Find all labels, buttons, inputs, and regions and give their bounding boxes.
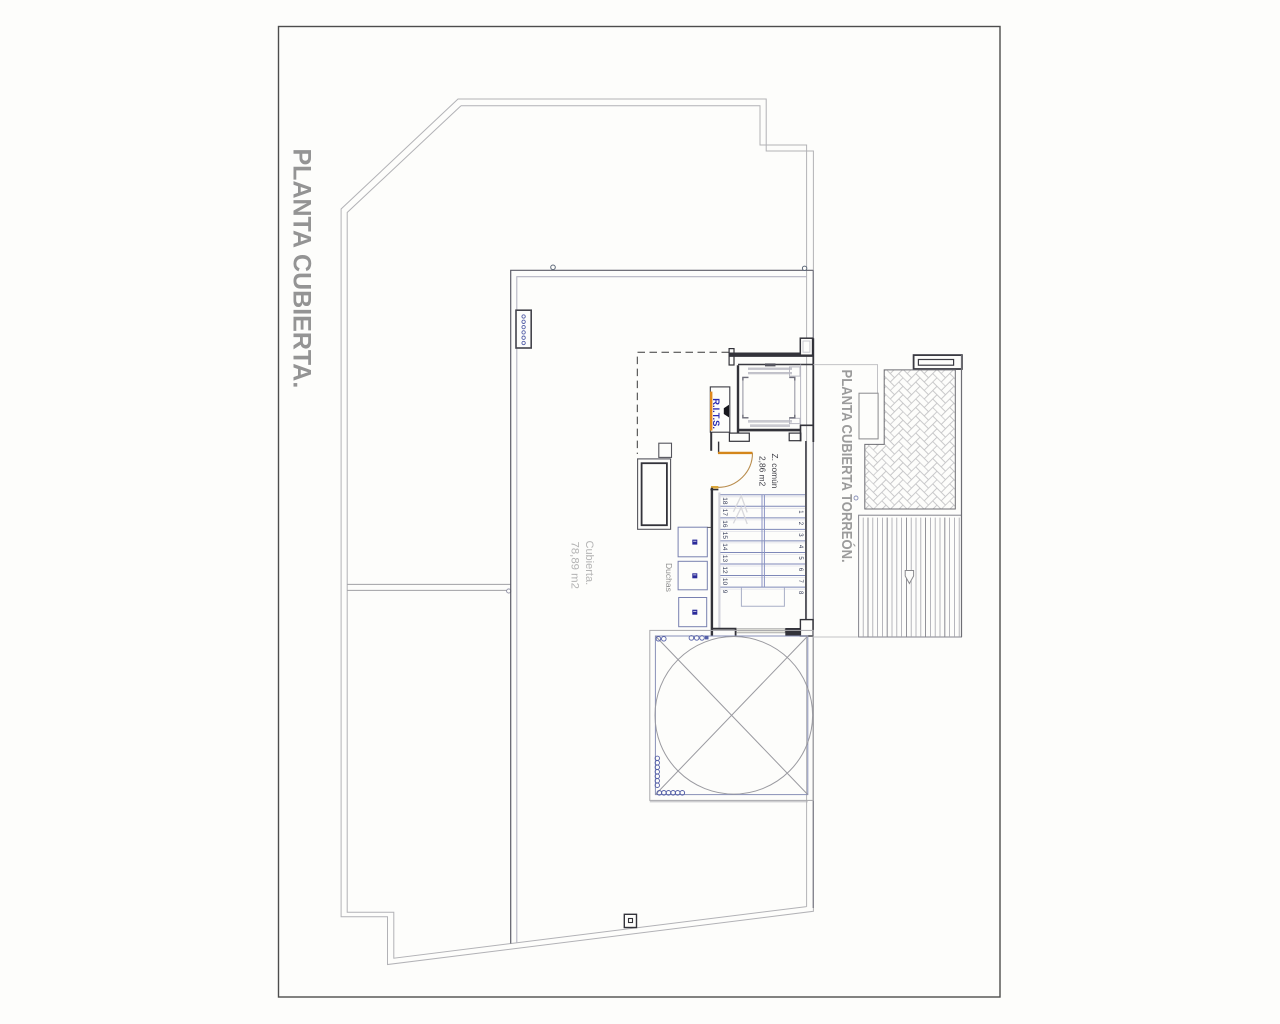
svg-text:Z. común: Z. común <box>770 454 780 489</box>
svg-text:14: 14 <box>721 543 728 551</box>
svg-text:PLANTA CUBIERTA TORREÓN.: PLANTA CUBIERTA TORREÓN. <box>839 370 857 563</box>
svg-text:10: 10 <box>721 578 728 586</box>
svg-text:9: 9 <box>721 590 728 594</box>
svg-text:78,89 m2: 78,89 m2 <box>569 542 581 590</box>
svg-text:15: 15 <box>721 532 728 540</box>
svg-text:13: 13 <box>721 555 728 563</box>
svg-text:18: 18 <box>721 497 728 505</box>
svg-text:2,86 m2: 2,86 m2 <box>757 456 767 487</box>
svg-text:12: 12 <box>721 566 728 574</box>
svg-text:16: 16 <box>721 520 728 528</box>
svg-text:Cubierta.: Cubierta. <box>583 541 595 586</box>
svg-text:17: 17 <box>721 509 728 517</box>
svg-text:PLANTA CUBIERTA.: PLANTA CUBIERTA. <box>288 149 316 389</box>
svg-text:Duchas: Duchas <box>664 563 674 592</box>
svg-text:R.I.T.S.: R.I.T.S. <box>711 398 722 429</box>
